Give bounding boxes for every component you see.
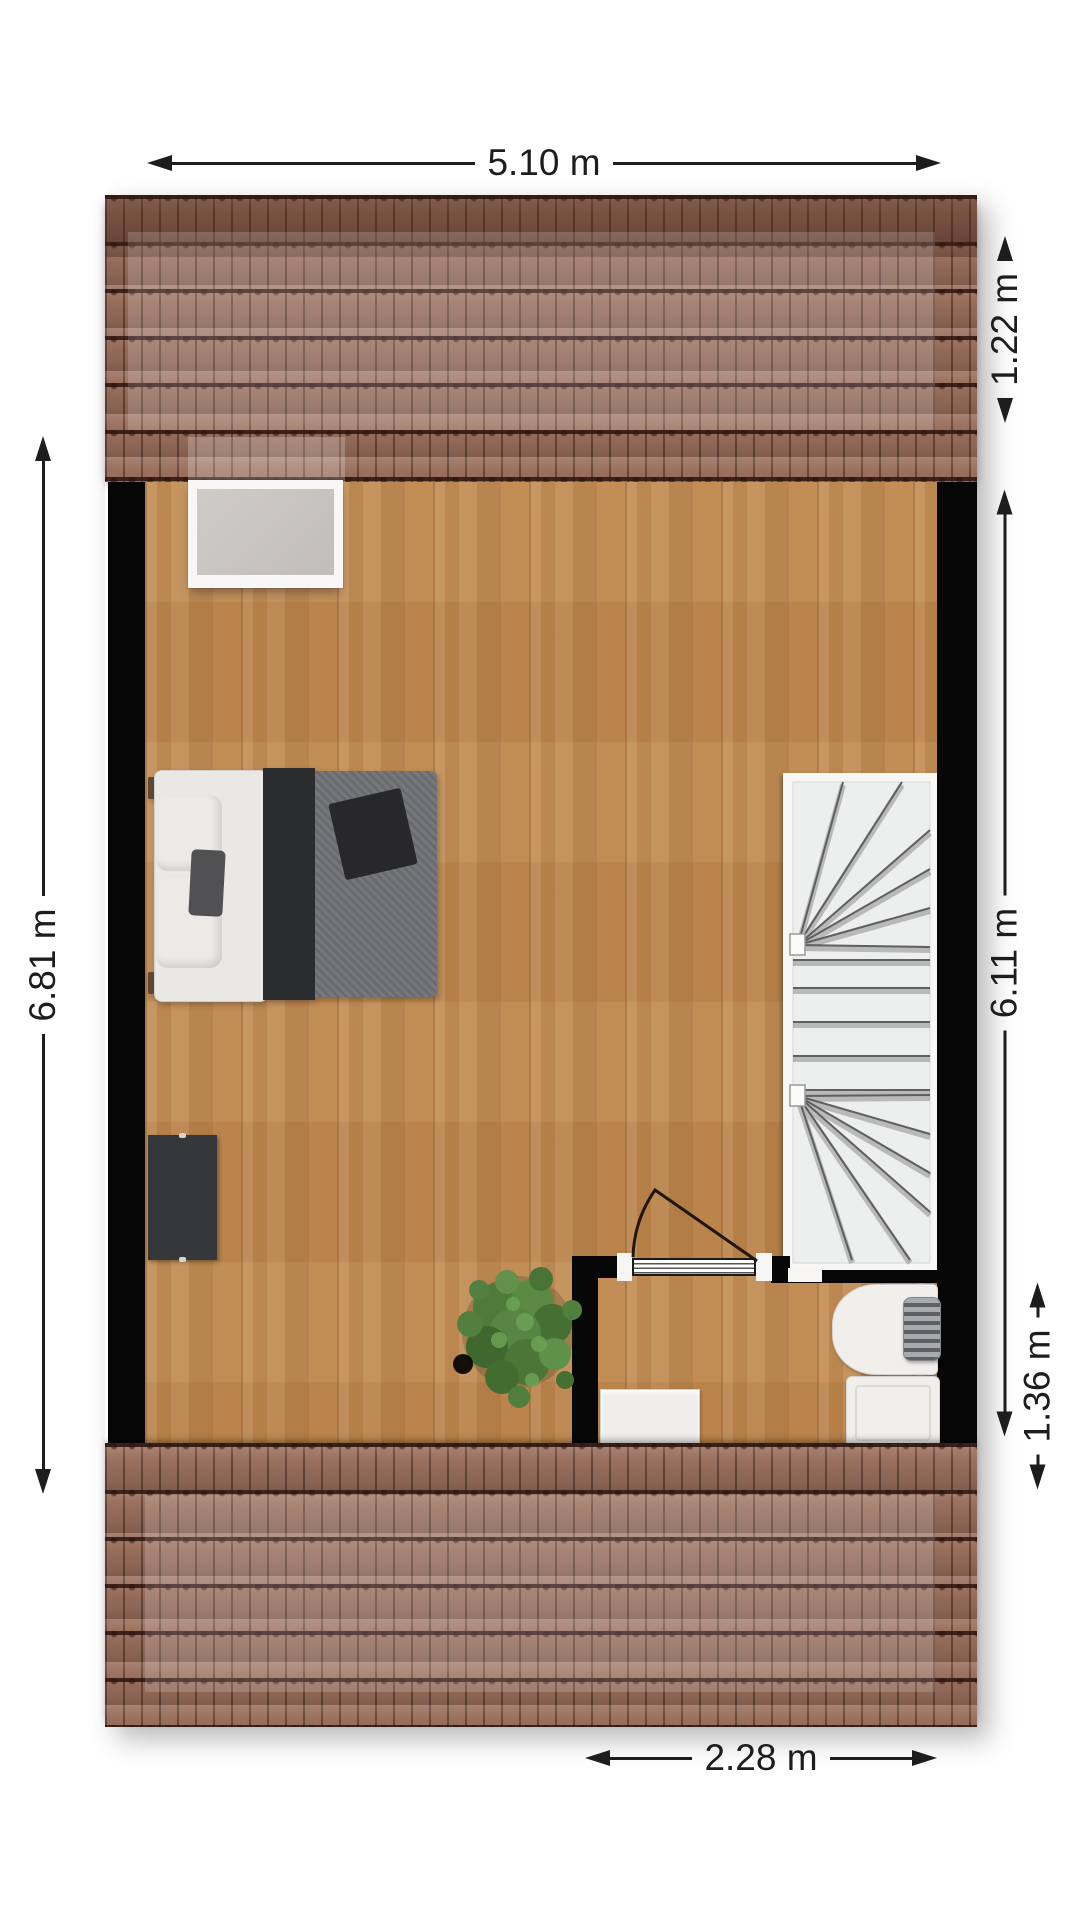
- arrow-up-icon: [997, 490, 1013, 515]
- tv-cabinet: [148, 1135, 217, 1260]
- arrow-up-icon: [35, 436, 51, 461]
- arrow-up-icon: [997, 236, 1013, 261]
- stair-newel: [790, 1085, 805, 1106]
- arrow-left-icon: [585, 1750, 610, 1766]
- double-bed: [148, 765, 438, 1002]
- arrow-down-icon: [997, 398, 1013, 423]
- dimension-right-upper: 1.22 m: [983, 237, 1027, 423]
- dimension-width-top: 5.10 m: [147, 141, 941, 185]
- arrow-up-icon: [1030, 1283, 1046, 1308]
- arrow-down-icon: [35, 1469, 51, 1494]
- shower-tray-inset: [855, 1385, 931, 1441]
- skylight-window: [188, 480, 343, 588]
- dimension-label: 2.28 m: [692, 1736, 829, 1780]
- arrow-down-icon: [997, 1412, 1013, 1437]
- arrow-left-icon: [147, 155, 172, 171]
- arrow-right-icon: [912, 1750, 937, 1766]
- winder-staircase: [783, 773, 937, 1270]
- floor-plan: 5.10 m 6.81 m 1.22 m 6.11 m 1.36 m 2.28 …: [0, 0, 1080, 1920]
- dimension-label: 6.11 m: [983, 896, 1027, 1030]
- dimension-label: 1.36 m: [1016, 1317, 1060, 1454]
- door-swing-arc: [598, 1158, 798, 1288]
- towel-radiator: [903, 1297, 941, 1361]
- dimension-label: 6.81 m: [21, 896, 65, 1033]
- bed-duvet-fold: [263, 768, 315, 1000]
- arrow-down-icon: [1030, 1465, 1046, 1490]
- dimension-height-left: 6.81 m: [21, 436, 65, 1494]
- dimension-label: 1.22 m: [983, 261, 1027, 398]
- cabinet-handle: [179, 1133, 186, 1138]
- roof-top-plane: [128, 232, 935, 430]
- arrow-right-icon: [916, 155, 941, 171]
- storage-unit: [600, 1389, 700, 1449]
- dimension-right-lower: 1.36 m: [1016, 1283, 1060, 1490]
- shower-tray: [846, 1376, 940, 1450]
- dimension-label: 5.10 m: [475, 141, 612, 185]
- roof-bottom: [105, 1443, 977, 1727]
- wall-right: [937, 482, 977, 1443]
- cabinet-handle: [179, 1257, 186, 1262]
- bed-cushion-dark: [188, 849, 225, 917]
- wall-left: [108, 482, 145, 1443]
- skylight-shaft: [188, 437, 345, 482]
- roof-bottom-plane: [145, 1495, 935, 1692]
- stair-newel: [790, 934, 805, 955]
- roof-top: [105, 195, 977, 482]
- dimension-width-bottom: 2.28 m: [585, 1736, 937, 1780]
- potted-plant: [437, 1252, 601, 1416]
